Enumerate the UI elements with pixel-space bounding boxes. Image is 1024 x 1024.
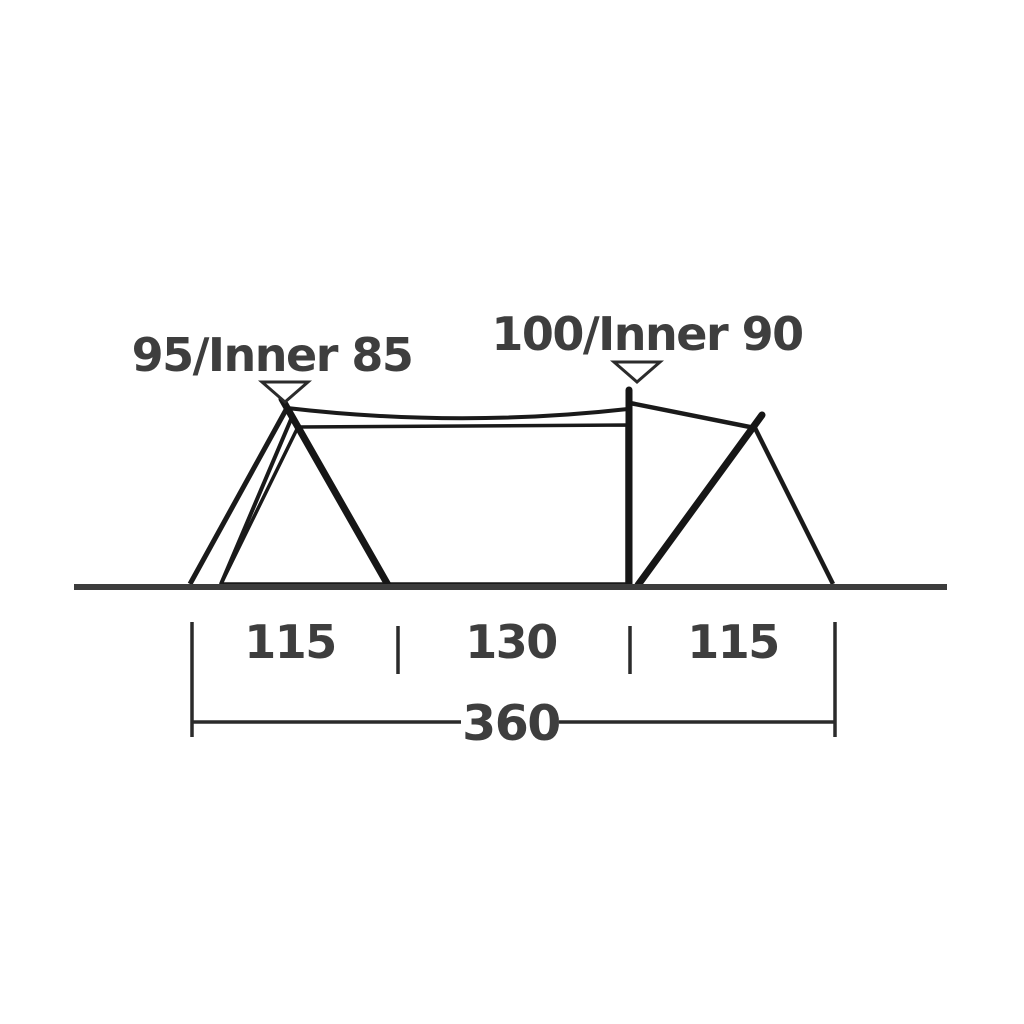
total-width-label: 360 — [462, 695, 560, 752]
rear-pole — [638, 415, 762, 585]
dimension-label-middle: 130 — [465, 615, 557, 669]
inner-tent-left-edge — [221, 417, 292, 584]
diagram-canvas: 95/Inner 85 100/Inner 90 115 130 115 360 — [0, 0, 1024, 1024]
marker-triangle-left — [262, 382, 308, 402]
fly-ridge-line — [287, 408, 628, 418]
fly-left-edge — [190, 408, 287, 584]
dimension-label-front: 115 — [244, 615, 336, 669]
tent-dimension-diagram: 95/Inner 85 100/Inner 90 115 130 115 360 — [0, 0, 1024, 1024]
marker-triangle-middle — [614, 362, 660, 382]
dimension-label-rear: 115 — [687, 615, 779, 669]
inner-tent-panel — [221, 425, 627, 584]
peak-height-label-left: 95/Inner 85 — [132, 328, 413, 382]
peak-height-label-middle: 100/Inner 90 — [491, 307, 802, 361]
